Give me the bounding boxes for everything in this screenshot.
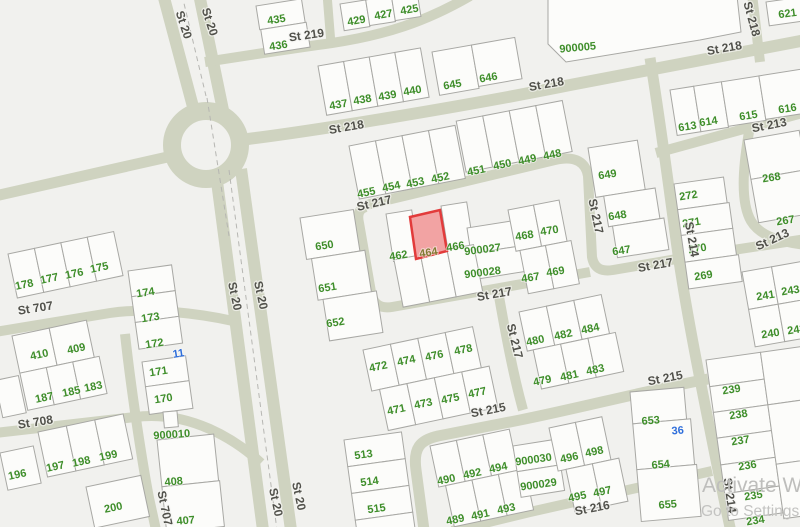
parcel-label-407: 407 xyxy=(176,514,195,527)
parcel-label-242: 242 xyxy=(787,323,800,338)
map-viewport[interactable]: 4354364294274254374384394406456469000056… xyxy=(0,0,800,527)
parcel-label-621: 621 xyxy=(778,7,798,21)
map-canvas[interactable]: 4354364294274254374384394406456469000056… xyxy=(0,0,800,527)
parcel-label-515: 515 xyxy=(367,502,387,516)
parcel-label-654: 654 xyxy=(651,458,671,472)
parcel-label-408: 408 xyxy=(164,475,183,489)
parcel-label-655: 655 xyxy=(658,498,677,512)
parcel-label-900010: 900010 xyxy=(153,428,190,443)
parcel-label-36: 36 xyxy=(671,425,684,438)
watermark-line2: Go to Settings to activate xyxy=(701,503,800,520)
parcel-label-513: 513 xyxy=(354,448,374,462)
watermark-line1: Activate Windows xyxy=(702,474,800,497)
parcel-label-11: 11 xyxy=(172,347,185,361)
parcel-label-653: 653 xyxy=(641,414,660,428)
parcel-900010-marker[interactable] xyxy=(163,411,178,428)
parcel-block-170-171[interactable] xyxy=(142,356,193,415)
road-st219-stub xyxy=(327,0,331,44)
